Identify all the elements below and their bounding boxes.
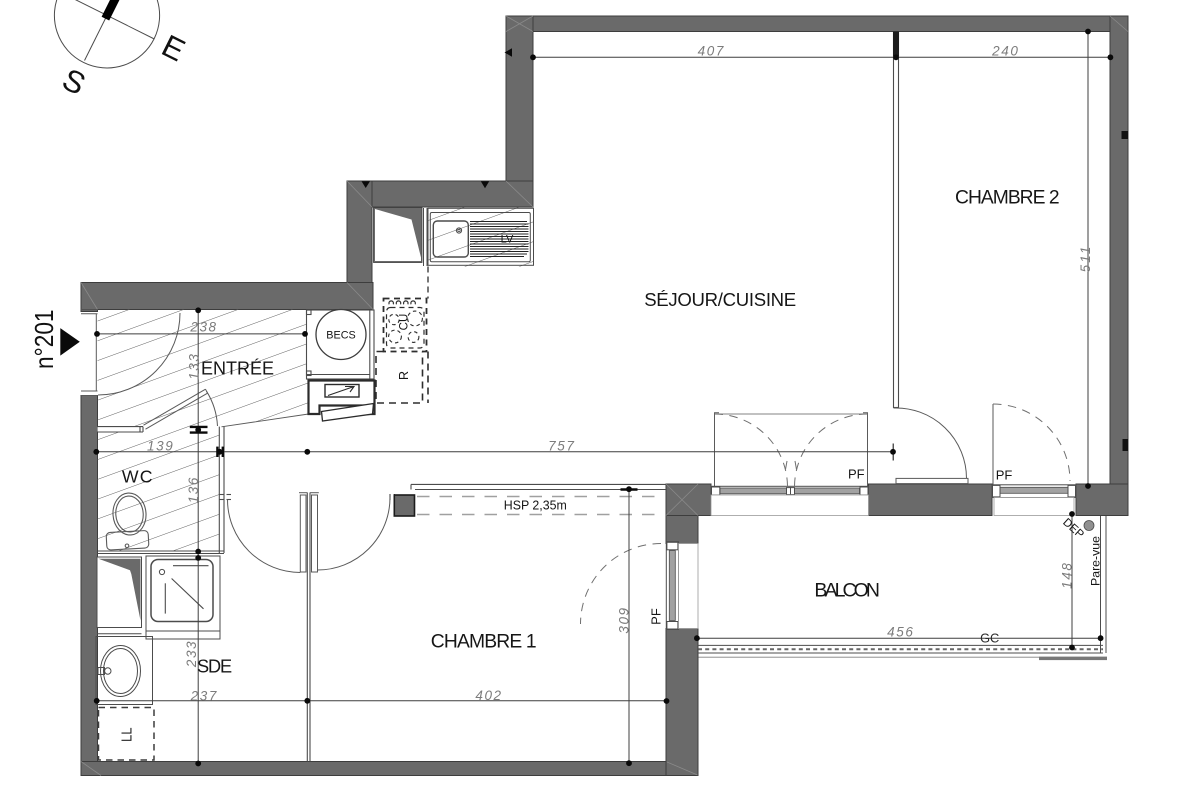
svg-text:CU: CU [399, 314, 411, 331]
svg-text:SÉJOUR/CUISINE: SÉJOUR/CUISINE [644, 289, 796, 310]
svg-text:136: 136 [186, 477, 201, 503]
svg-text:402: 402 [475, 688, 501, 703]
svg-text:CHAMBRE 1: CHAMBRE 1 [431, 632, 537, 653]
svg-text:PF: PF [848, 466, 865, 481]
svg-text:R: R [397, 371, 411, 380]
svg-text:407: 407 [698, 44, 724, 59]
svg-text:BALCON: BALCON [814, 579, 880, 601]
svg-text:BECS: BECS [326, 330, 355, 342]
svg-text:139: 139 [147, 439, 173, 454]
svg-text:148: 148 [1060, 563, 1075, 589]
svg-text:n°201: n°201 [29, 309, 59, 369]
svg-text:PF: PF [996, 467, 1013, 482]
svg-text:LL: LL [119, 728, 136, 743]
svg-text:LV: LV [501, 234, 514, 246]
svg-text:238: 238 [189, 319, 216, 334]
svg-text:Pare-vue: Pare-vue [1089, 536, 1103, 586]
svg-text:GC: GC [980, 630, 999, 645]
svg-text:511: 511 [1078, 247, 1093, 273]
svg-text:240: 240 [991, 44, 1018, 59]
svg-text:ENTRÉE: ENTRÉE [201, 359, 274, 379]
svg-text:237: 237 [190, 688, 217, 703]
svg-text:WC: WC [122, 466, 153, 486]
svg-text:309: 309 [617, 607, 632, 633]
svg-text:HSP 2,35m: HSP 2,35m [504, 498, 567, 513]
svg-text:PF: PF [649, 608, 664, 625]
svg-text:133: 133 [186, 354, 201, 380]
svg-text:456: 456 [887, 624, 913, 639]
svg-text:757: 757 [548, 439, 574, 454]
svg-text:CHAMBRE 2: CHAMBRE 2 [955, 188, 1060, 209]
svg-text:SDE: SDE [197, 656, 232, 676]
